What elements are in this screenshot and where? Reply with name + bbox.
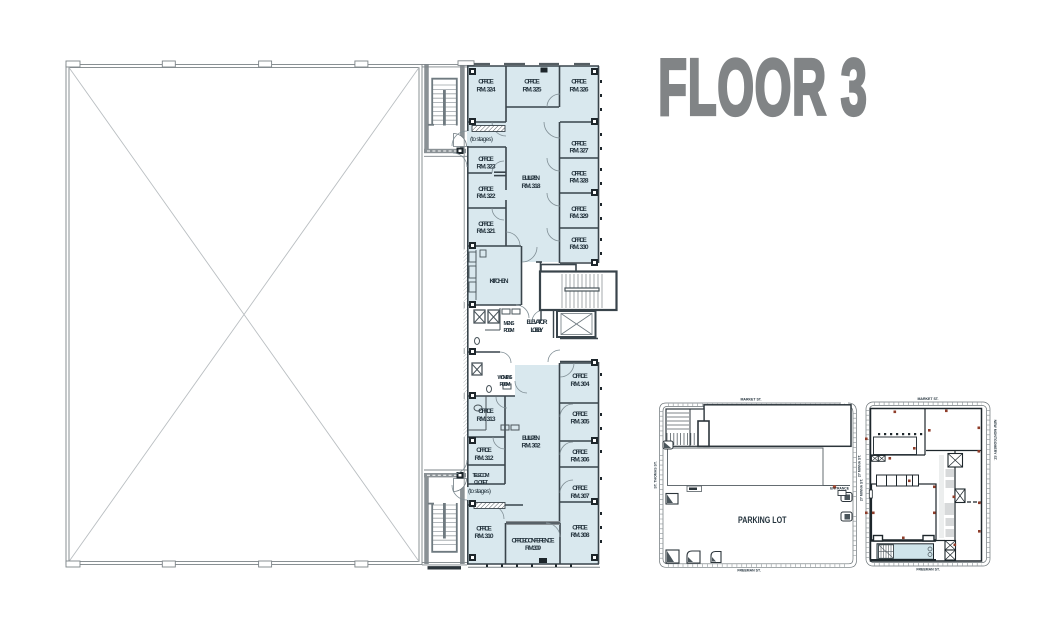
svg-text:RM. 327: RM. 327 — [570, 148, 589, 155]
svg-text:RM. 330: RM. 330 — [570, 244, 589, 251]
svg-text:BULLPEN: BULLPEN — [522, 175, 540, 182]
svg-text:RM. 321: RM. 321 — [477, 228, 496, 235]
svg-text:OFFICE: OFFICE — [571, 206, 587, 213]
svg-text:KITCHEN: KITCHEN — [490, 278, 509, 285]
svg-text:27 MINNA ST.: 27 MINNA ST. — [858, 455, 862, 478]
svg-text:RM. 323: RM. 323 — [477, 164, 496, 171]
svg-text:OFFICE: OFFICE — [476, 447, 492, 454]
svg-text:OFFICE: OFFICE — [478, 408, 494, 415]
svg-text:RM. 308: RM. 308 — [571, 532, 590, 539]
svg-text:OFFICE: OFFICE — [572, 411, 588, 418]
svg-text:(to stages): (to stages) — [470, 136, 493, 143]
svg-text:BULLPEN: BULLPEN — [522, 435, 540, 442]
svg-text:FREEMAN ST.: FREEMAN ST. — [916, 568, 940, 572]
svg-text:RM. 324: RM. 324 — [477, 87, 496, 94]
svg-text:PARKING LOT: PARKING LOT — [738, 515, 787, 526]
svg-text:ENTRANCE: ENTRANCE — [830, 487, 850, 491]
svg-text:RM. 312: RM. 312 — [475, 455, 494, 462]
svg-text:RM. 313: RM. 313 — [477, 416, 496, 423]
svg-text:CLOSET: CLOSET — [474, 480, 489, 486]
svg-text:LOBBY: LOBBY — [531, 327, 545, 334]
svg-text:OFFICE: OFFICE — [478, 156, 494, 163]
svg-text:RM. 328: RM. 328 — [570, 178, 589, 185]
svg-text:RM. 325: RM. 325 — [523, 87, 542, 94]
svg-text:RM. 309: RM. 309 — [525, 545, 541, 552]
svg-text:RM. 310: RM. 310 — [475, 533, 494, 540]
svg-text:27 MINNA ST.: 27 MINNA ST. — [860, 479, 864, 502]
svg-text:OFFICE: OFFICE — [571, 79, 587, 86]
svg-text:RM. 304: RM. 304 — [571, 381, 590, 388]
svg-text:ROOM: ROOM — [500, 382, 512, 388]
svg-text:OFFICE: OFFICE — [524, 79, 540, 86]
svg-text:ELEVATOR: ELEVATOR — [527, 319, 548, 326]
svg-text:MARKET ST.: MARKET ST. — [741, 398, 762, 402]
svg-text:OFFICE: OFFICE — [478, 79, 494, 86]
svg-text:WOMENS: WOMENS — [498, 375, 513, 381]
svg-text:ST. THOMAS ST.: ST. THOMAS ST. — [654, 461, 658, 489]
svg-text:OFFICE: OFFICE — [476, 526, 492, 533]
svg-text:OFFICE: OFFICE — [572, 485, 588, 492]
svg-text:MARKET ST.: MARKET ST. — [918, 397, 939, 401]
svg-text:ROOM: ROOM — [504, 328, 516, 334]
svg-text:OFFICE: OFFICE — [478, 186, 494, 193]
svg-text:OFFICE: OFFICE — [572, 373, 588, 380]
svg-text:OFFICE: OFFICE — [572, 449, 588, 456]
svg-text:RM. 326: RM. 326 — [570, 87, 589, 94]
svg-text:RM. 322: RM. 322 — [477, 193, 496, 200]
svg-text:RM. 302: RM. 302 — [522, 443, 541, 450]
svg-text:OFFICE: OFFICE — [571, 171, 587, 178]
svg-text:OFFICE/CONFERENCE: OFFICE/CONFERENCE — [512, 538, 556, 545]
svg-text:FLOOR 3: FLOOR 3 — [658, 41, 867, 131]
svg-text:TELECOM: TELECOM — [473, 473, 491, 479]
svg-text:OFFICE: OFFICE — [571, 237, 587, 244]
svg-text:FREEMAN ST.: FREEMAN ST. — [737, 569, 761, 573]
svg-text:RM. 329: RM. 329 — [570, 213, 589, 220]
svg-text:NEW MONTGOMERY ST.: NEW MONTGOMERY ST. — [993, 420, 997, 461]
svg-text:OFFICE: OFFICE — [478, 221, 494, 228]
svg-text:RM. 318: RM. 318 — [522, 183, 541, 190]
svg-text:RM. 305: RM. 305 — [571, 419, 590, 426]
svg-text:OFFICE: OFFICE — [572, 525, 588, 532]
svg-text:OFFICE: OFFICE — [571, 141, 587, 148]
svg-text:RM. 307: RM. 307 — [571, 493, 590, 500]
svg-text:RM. 306: RM. 306 — [571, 457, 590, 464]
svg-text:(to stages): (to stages) — [468, 488, 491, 495]
svg-text:MENS: MENS — [504, 321, 515, 327]
